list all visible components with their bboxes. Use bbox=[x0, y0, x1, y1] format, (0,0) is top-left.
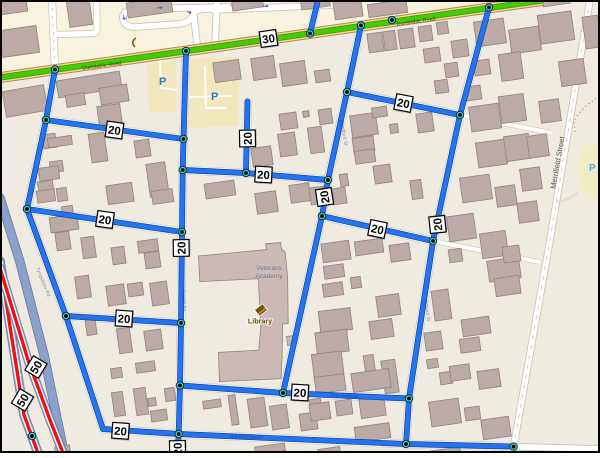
svg-text:20: 20 bbox=[117, 313, 131, 326]
svg-text:Veterans: Veterans bbox=[256, 265, 282, 272]
svg-text:Fourth Av: Fourth Av bbox=[180, 290, 187, 312]
svg-text:20: 20 bbox=[396, 97, 411, 111]
svg-text:20: 20 bbox=[319, 190, 333, 205]
svg-text:30: 30 bbox=[262, 33, 276, 47]
svg-text:20: 20 bbox=[98, 214, 112, 228]
svg-text:P: P bbox=[589, 163, 596, 174]
svg-text:20: 20 bbox=[257, 169, 270, 182]
svg-text:Library: Library bbox=[248, 317, 272, 326]
svg-text:20: 20 bbox=[114, 426, 128, 439]
svg-text:Fifth Avenue: Fifth Avenue bbox=[330, 393, 358, 400]
svg-text:20: 20 bbox=[293, 387, 306, 400]
svg-text:20: 20 bbox=[432, 217, 445, 231]
svg-text:P: P bbox=[159, 76, 166, 88]
svg-text:20: 20 bbox=[107, 124, 121, 138]
svg-text:Baldwin Street: Baldwin Street bbox=[230, 434, 263, 441]
svg-text:Academy: Academy bbox=[255, 273, 283, 280]
svg-text:20: 20 bbox=[243, 132, 255, 145]
svg-text:20: 20 bbox=[176, 241, 188, 254]
svg-text:P: P bbox=[211, 91, 218, 103]
